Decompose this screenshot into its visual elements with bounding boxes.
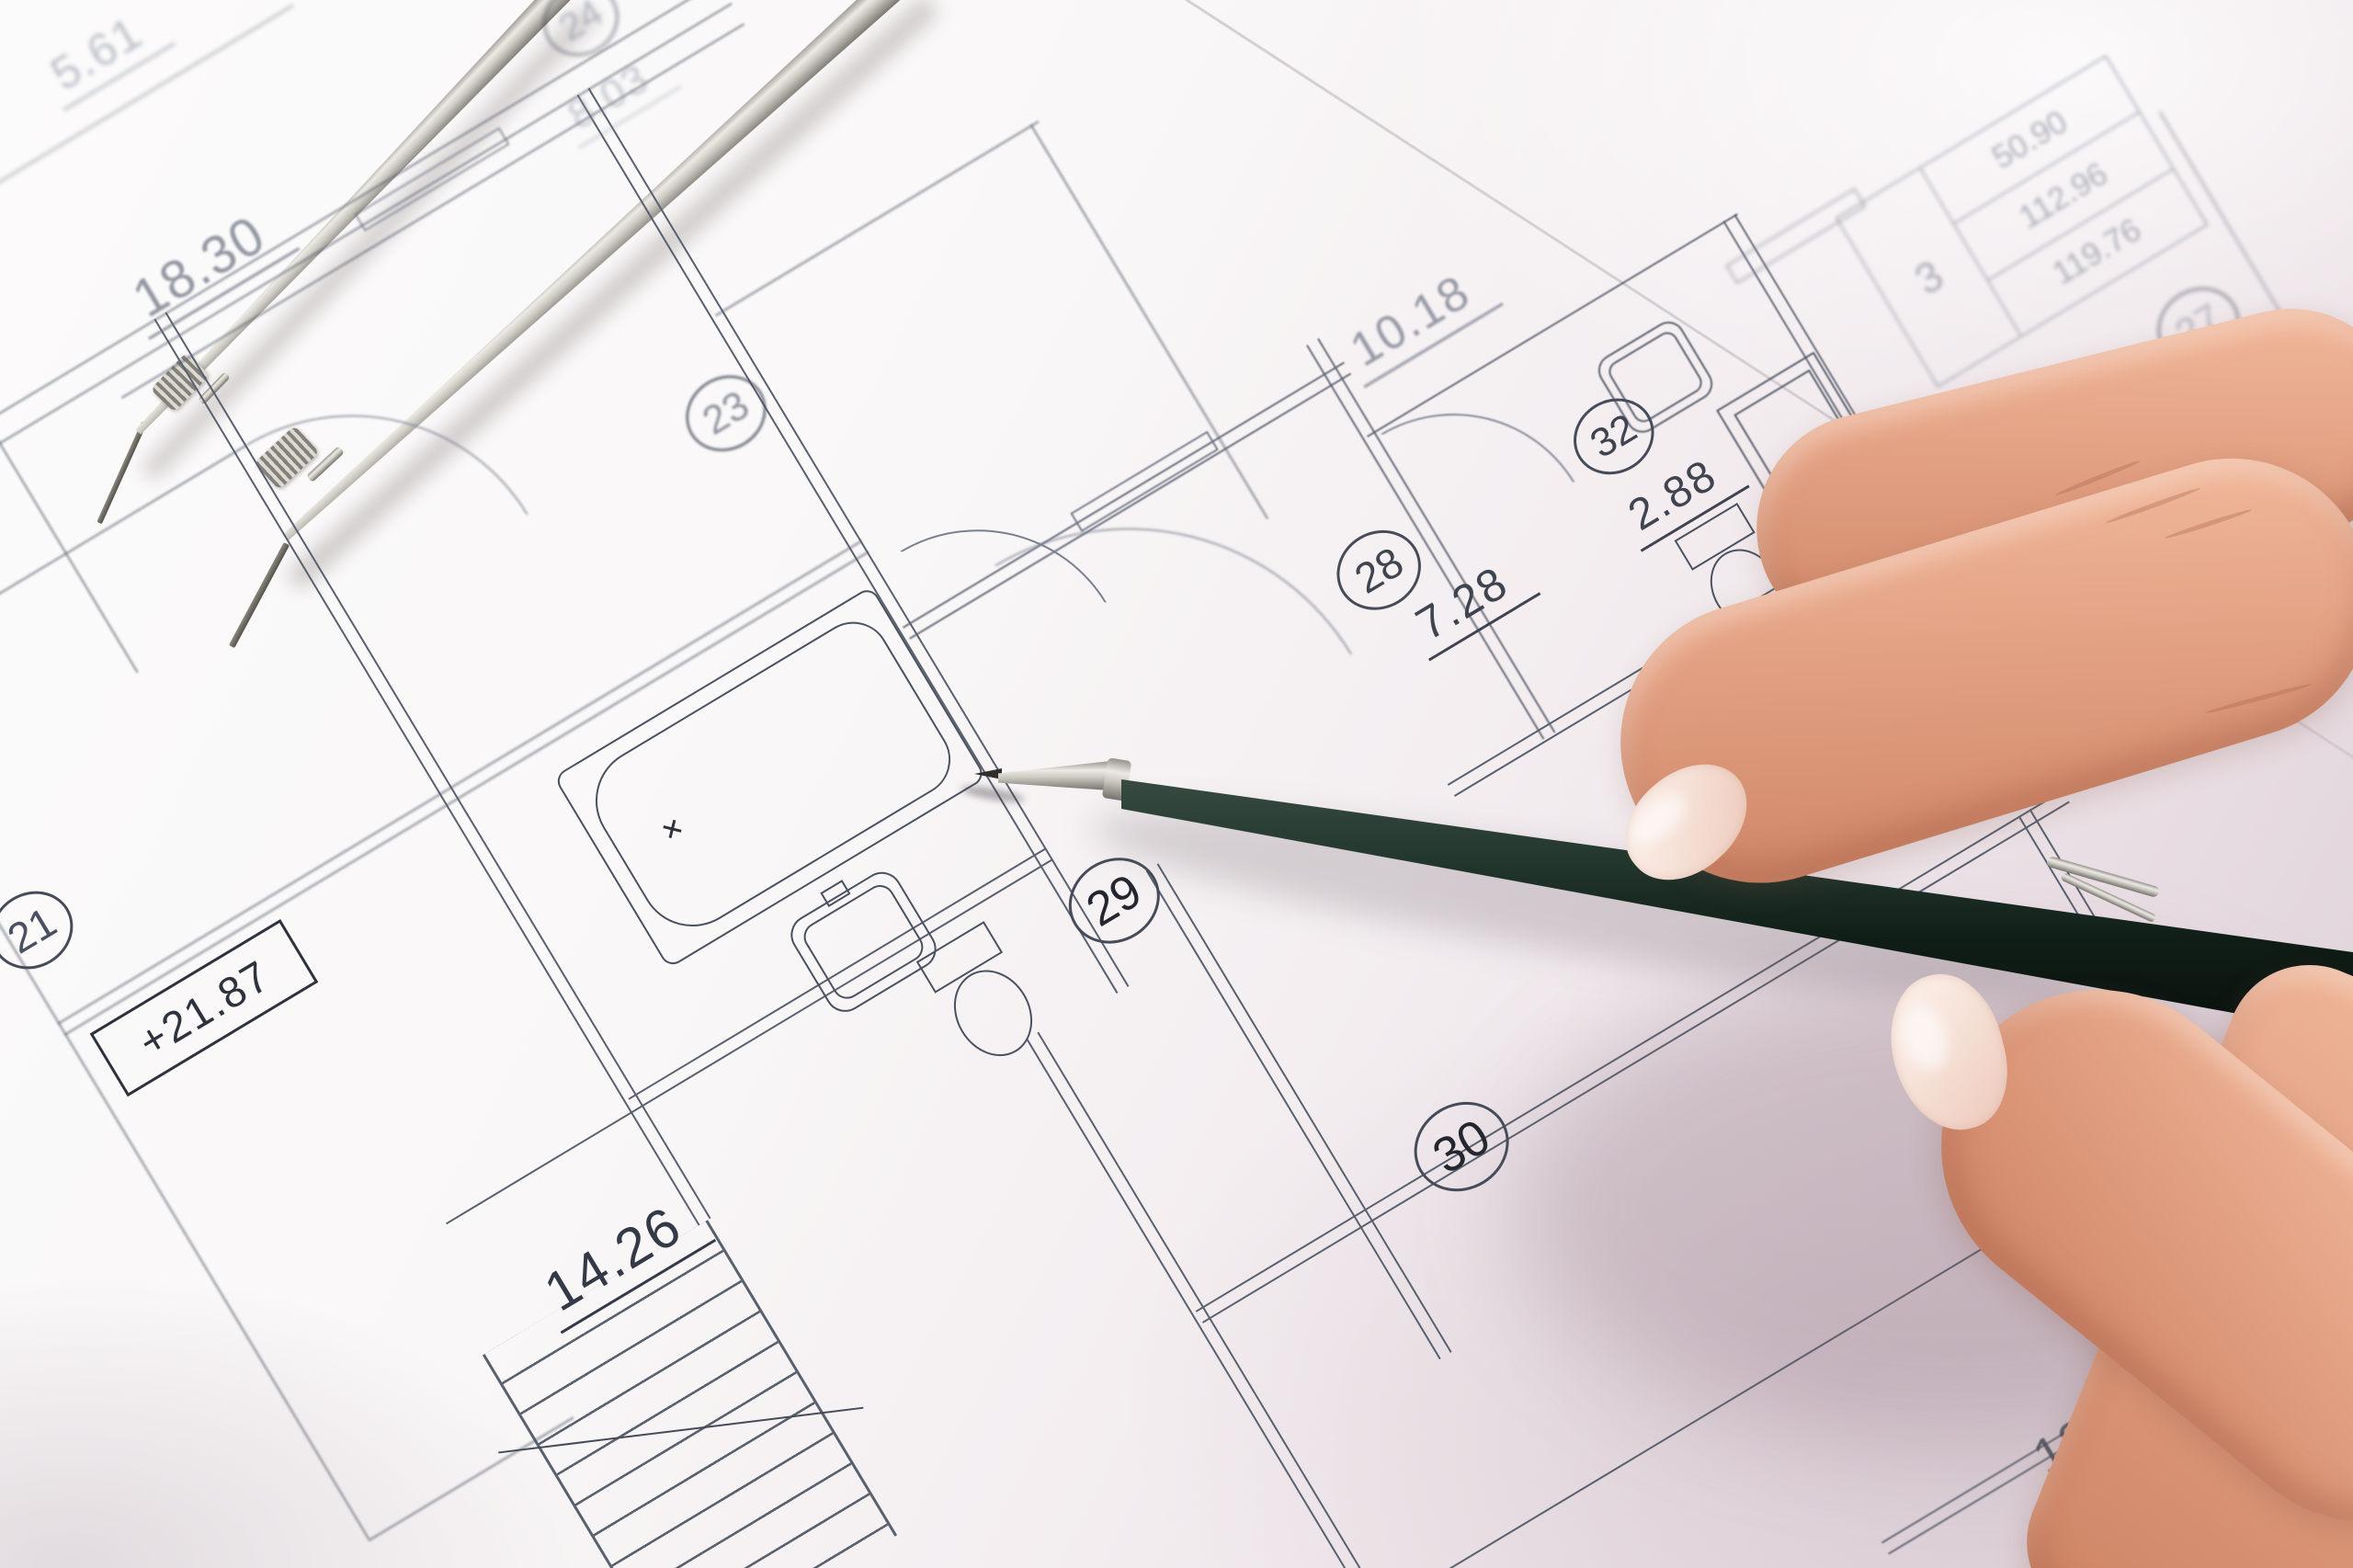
pencil-metal-sleeve	[998, 761, 1110, 790]
blueprint-photo: 5.61 18.30 8.03 10.18 7.28 2.88 14.26 13…	[0, 0, 2353, 1568]
nail-shine	[1897, 1002, 1954, 1074]
stair-break-line	[498, 1407, 863, 1454]
pencil-lead-tip	[974, 768, 1002, 779]
